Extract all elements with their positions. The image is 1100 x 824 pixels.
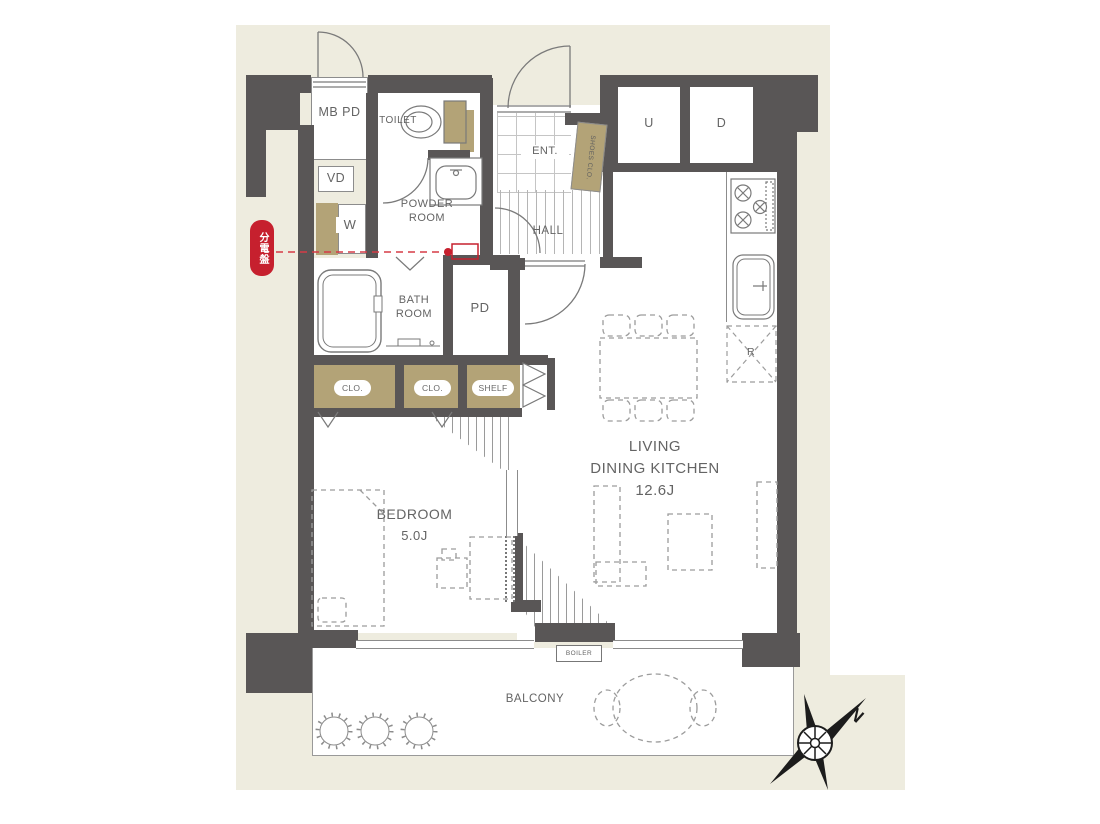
label-vd: VD <box>318 171 354 187</box>
partition-window <box>506 470 518 536</box>
label-ldk-line2: DINING KITCHEN <box>572 460 738 479</box>
label-ldk-area: 12.6J <box>600 482 710 501</box>
wall <box>298 125 314 635</box>
label-bedroom: BEDROOM <box>362 506 467 524</box>
label-bath-room: BATH ROOM <box>388 294 440 322</box>
wall <box>395 363 404 410</box>
ldk-window <box>613 640 743 649</box>
boiler-box: BOILER <box>556 645 602 662</box>
wall <box>508 260 520 360</box>
label-fridge: R <box>736 346 766 359</box>
toilet-cabinet <box>460 110 474 152</box>
kitchen-counter <box>726 172 777 322</box>
label-closet-1: CLO. <box>334 380 371 396</box>
label-bath-line1: BATH <box>388 294 440 308</box>
wall <box>777 130 797 640</box>
wall <box>368 75 492 93</box>
label-shelf: SHELF <box>472 380 514 396</box>
wall <box>535 623 615 642</box>
wall <box>246 75 266 197</box>
plan-background-compass-area <box>830 675 905 790</box>
label-meter-box: MB PD <box>311 105 368 121</box>
label-powder-line2: ROOM <box>388 212 466 226</box>
label-bedroom-area: 5.0J <box>362 528 467 544</box>
wall <box>742 633 800 667</box>
label-entrance: ENT. <box>521 145 569 159</box>
label-powder-line1: POWDER <box>388 198 466 212</box>
wall <box>547 358 555 410</box>
label-ldk-line1: LIVING <box>600 438 710 457</box>
wall <box>246 75 311 93</box>
label-closet-2: CLO. <box>414 380 451 396</box>
label-balcony: BALCONY <box>492 692 578 706</box>
label-stairs-up: U <box>618 116 680 132</box>
wall <box>443 260 453 360</box>
label-powder-room: POWDER ROOM <box>388 198 466 226</box>
floor-plan: SHOES CLO. <box>0 0 1100 824</box>
accordion-rail <box>505 536 515 602</box>
wall <box>298 355 548 365</box>
label-bath-line2: ROOM <box>388 308 440 322</box>
washer-closet <box>316 203 338 255</box>
wall <box>511 600 541 612</box>
distribution-board-badge: 分電盤 <box>250 220 274 276</box>
hall-step-lines <box>500 190 600 254</box>
wall <box>480 78 493 260</box>
wall <box>246 633 312 693</box>
label-toilet: TOILET <box>372 115 424 128</box>
label-hall: HALL <box>525 224 571 238</box>
wall <box>300 408 522 417</box>
wall <box>458 363 467 410</box>
wall <box>600 257 642 268</box>
label-pipe-duct: PD <box>458 300 502 316</box>
wall <box>428 150 470 160</box>
label-washer: W <box>336 217 364 233</box>
wall <box>515 533 523 603</box>
label-stairs-down: D <box>690 116 753 132</box>
bedroom-window <box>356 640 534 649</box>
